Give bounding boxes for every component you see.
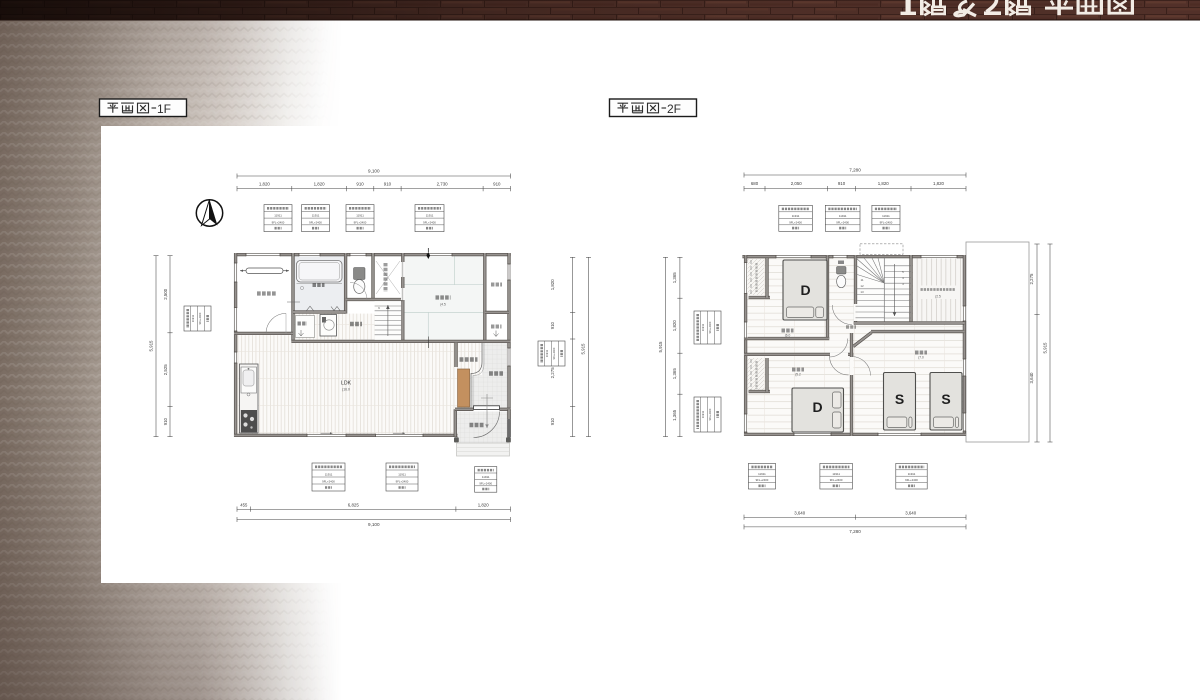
svg-text:D: D	[800, 282, 810, 298]
svg-text:11911: 11911	[325, 472, 333, 476]
svg-text:1,820: 1,820	[314, 181, 326, 186]
svg-text:6,825: 6,825	[348, 502, 360, 507]
svg-text:11911: 11911	[545, 349, 549, 357]
svg-text:2,500: 2,500	[163, 288, 168, 300]
svg-text:910: 910	[550, 321, 555, 329]
svg-text:1,820: 1,820	[259, 181, 271, 186]
svg-text:7,280: 7,280	[849, 529, 861, 534]
svg-text:LDK: LDK	[341, 381, 352, 387]
svg-text:2,050: 2,050	[791, 181, 803, 186]
svg-text:3,640: 3,640	[905, 510, 917, 515]
svg-text:11: 11	[860, 278, 863, 282]
svg-text:11911: 11911	[882, 214, 890, 218]
svg-text:680: 680	[751, 181, 759, 186]
svg-text:(5.2: (5.2	[795, 373, 801, 377]
svg-text:(7.0: (7.0	[918, 356, 924, 360]
svg-text:S: S	[895, 391, 904, 407]
svg-text:2,730: 2,730	[437, 181, 449, 186]
svg-text:455: 455	[240, 502, 248, 507]
svg-text:11911: 11911	[701, 323, 705, 331]
svg-text:2F: 2F	[667, 102, 681, 116]
svg-text:9,100: 9,100	[368, 522, 380, 527]
svg-text:9FL+2400: 9FL+2400	[905, 478, 918, 482]
svg-text:1,820: 1,820	[672, 320, 677, 332]
svg-text:11911: 11911	[426, 214, 434, 218]
svg-text:1,820: 1,820	[478, 502, 490, 507]
svg-text:910: 910	[356, 181, 364, 186]
svg-text:(16.0: (16.0	[342, 388, 350, 392]
svg-text:11911: 11911	[191, 314, 195, 322]
svg-text:11911: 11911	[398, 472, 406, 476]
svg-text:S: S	[941, 391, 950, 407]
svg-text:11911: 11911	[832, 472, 840, 476]
svg-text:7,280: 7,280	[849, 168, 861, 173]
svg-text:9FL+2400: 9FL+2400	[880, 220, 893, 224]
svg-text:2,275: 2,275	[550, 367, 555, 379]
svg-text:9,100: 9,100	[368, 169, 380, 174]
svg-text:9FL+2400: 9FL+2400	[322, 479, 335, 483]
svg-text:9FL+2400: 9FL+2400	[830, 478, 843, 482]
svg-text:9FL+2400: 9FL+2400	[396, 479, 409, 483]
svg-text:2,525: 2,525	[163, 364, 168, 376]
svg-text:11911: 11911	[792, 214, 800, 218]
svg-text:11911: 11911	[482, 475, 490, 479]
svg-text:910: 910	[493, 181, 501, 186]
svg-text:5,915: 5,915	[658, 341, 663, 353]
svg-text:1F: 1F	[157, 102, 171, 116]
svg-text:11911: 11911	[839, 214, 847, 218]
svg-text:3,640: 3,640	[794, 510, 806, 515]
svg-text:9FL+2400: 9FL+2400	[552, 347, 556, 359]
svg-text:(6.0: (6.0	[785, 334, 791, 338]
svg-text:1,820: 1,820	[550, 279, 555, 291]
svg-text:9FL+2400: 9FL+2400	[479, 481, 492, 485]
svg-text:2,275: 2,275	[1029, 273, 1034, 285]
svg-text:9FL+2400: 9FL+2400	[708, 408, 712, 420]
svg-text:9FL+2400: 9FL+2400	[708, 321, 712, 333]
svg-text:12: 12	[860, 284, 864, 288]
svg-text:9FL+2400: 9FL+2400	[309, 220, 322, 224]
svg-text:1,365: 1,365	[672, 409, 677, 421]
svg-text:9FL+2400: 9FL+2400	[198, 312, 202, 324]
svg-text:5,915: 5,915	[581, 343, 586, 355]
svg-text:9FL+2400: 9FL+2400	[272, 220, 285, 224]
svg-text:910: 910	[838, 181, 846, 186]
svg-text:9FL+2400: 9FL+2400	[756, 478, 769, 482]
svg-text:1,365: 1,365	[672, 368, 677, 380]
svg-text:(4.5: (4.5	[440, 303, 446, 307]
svg-text:9FL+2400: 9FL+2400	[423, 220, 436, 224]
svg-text:1,365: 1,365	[672, 272, 677, 284]
svg-text:11911: 11911	[356, 214, 364, 218]
svg-text:910: 910	[550, 417, 555, 425]
svg-text:D: D	[812, 399, 822, 415]
svg-text:5,915: 5,915	[1043, 342, 1048, 354]
svg-text:11911: 11911	[701, 410, 705, 418]
svg-text:910: 910	[163, 417, 168, 425]
svg-text:(2.5: (2.5	[935, 295, 941, 299]
svg-text:1,820: 1,820	[933, 181, 945, 186]
svg-text:9FL+2400: 9FL+2400	[789, 220, 802, 224]
svg-text:11911: 11911	[312, 214, 320, 218]
svg-text:1,820: 1,820	[878, 181, 890, 186]
svg-text:5,915: 5,915	[149, 340, 154, 352]
svg-text:11911: 11911	[908, 472, 916, 476]
svg-text:3,640: 3,640	[1029, 372, 1034, 384]
svg-text:9FL+2400: 9FL+2400	[354, 220, 367, 224]
svg-text:11911: 11911	[758, 472, 766, 476]
svg-text:13: 13	[860, 290, 864, 294]
svg-text:11911: 11911	[274, 214, 282, 218]
svg-text:910: 910	[384, 181, 392, 186]
svg-text:9FL+2400: 9FL+2400	[836, 220, 849, 224]
